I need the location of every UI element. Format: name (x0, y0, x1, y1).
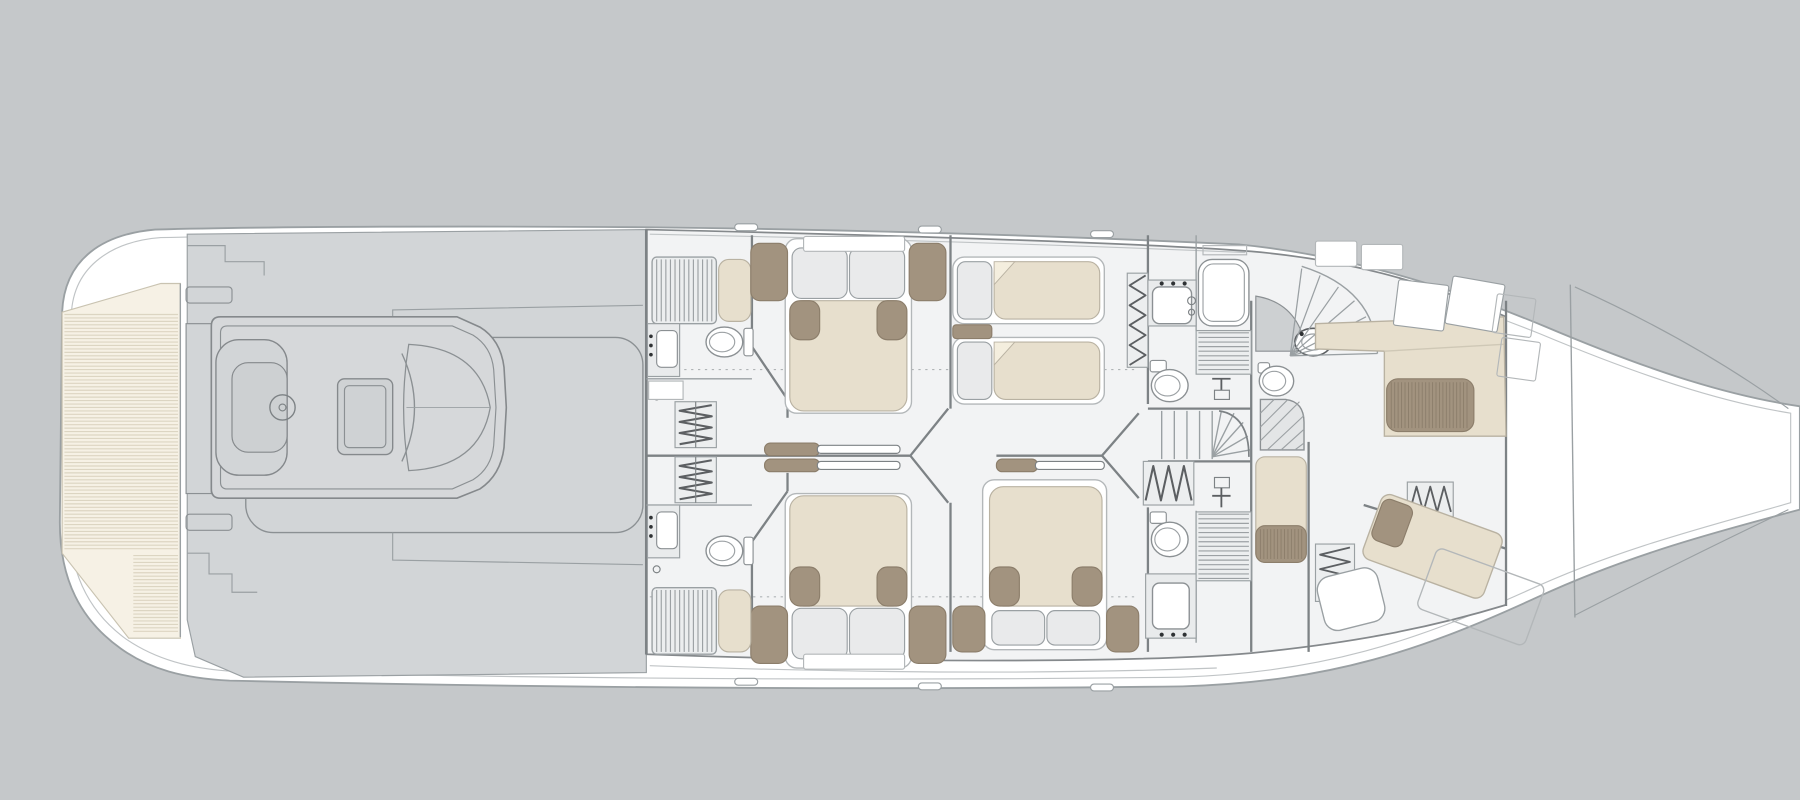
bed-fold-corner (790, 301, 820, 340)
toilet-bowl (706, 327, 743, 357)
sliding-door-pull (765, 443, 820, 456)
dinette-table (1393, 279, 1449, 331)
deck-cleat (1091, 231, 1114, 238)
twin-bed-spread (994, 262, 1100, 319)
galley-counter (1315, 241, 1356, 266)
bed-corner-cushion (751, 243, 788, 300)
cabin-dresser (804, 236, 905, 251)
bed-pillow (849, 608, 904, 659)
nightstand (953, 325, 992, 339)
toilet-bowl (1151, 522, 1188, 556)
bed-pillow (792, 608, 847, 659)
tender-console (338, 379, 393, 455)
bed-pillow (792, 248, 847, 299)
bed-fold-corner (790, 567, 820, 606)
sliding-door-leaf (1035, 461, 1104, 469)
basin-tap-dot (1300, 332, 1304, 336)
deck-cleat (1091, 684, 1114, 691)
deck-cleat (918, 226, 941, 233)
faucet-dot (1160, 633, 1164, 637)
floor-plan-svg (0, 0, 1800, 800)
deck-cleat (918, 683, 941, 690)
faucet-dot (649, 525, 653, 529)
faucet-dot (649, 353, 653, 357)
vanity-sink (657, 512, 678, 549)
bed-pillow (849, 248, 904, 299)
faucet-dot (1183, 281, 1187, 285)
vanity-sink (1153, 287, 1192, 324)
toilet-bowl (1151, 370, 1188, 402)
twin-bed-spread (994, 342, 1100, 399)
toilet-tank (1150, 512, 1166, 523)
bathtub (1198, 259, 1249, 326)
galley-counter (1361, 244, 1402, 269)
sliding-door-leaf (817, 445, 900, 453)
bath-shelf (649, 381, 683, 399)
bed-corner-cushion (909, 606, 946, 663)
sliding-door-leaf (817, 461, 900, 469)
deck-cleat (735, 224, 758, 231)
sliding-door-pull (996, 459, 1037, 472)
bed-pillow (992, 611, 1045, 645)
bed-fold-corner (877, 567, 907, 606)
faucet-dot (1183, 633, 1187, 637)
faucet-dot (1171, 281, 1175, 285)
bath-bench-cushion (719, 259, 751, 321)
faucet-dot (649, 516, 653, 520)
toilet-bowl (1259, 366, 1293, 396)
faucet-dot (1171, 633, 1175, 637)
bed-fold-corner (990, 567, 1020, 606)
vanity-sink (657, 331, 678, 368)
sliding-door-pull (765, 459, 820, 472)
toilet-tank (744, 537, 753, 565)
faucet-dot (649, 534, 653, 538)
faucet-dot (1160, 281, 1164, 285)
toilet-tank (744, 328, 753, 356)
tender-stern-platform (186, 324, 211, 494)
toilet-bowl (706, 536, 743, 566)
vanity-sink (1153, 583, 1190, 629)
bed-fold-corner (877, 301, 907, 340)
bed-corner-cushion (953, 606, 985, 652)
bed-pillow (957, 342, 991, 399)
bed-corner-cushion (751, 606, 788, 663)
faucet-dot (649, 344, 653, 348)
bed-corner-cushion (1107, 606, 1139, 652)
bed-corner-cushion (909, 243, 946, 300)
bed-fold-corner (1072, 567, 1102, 606)
cabin-dresser (804, 654, 905, 669)
faucet-dot (649, 334, 653, 338)
bed-pillow (1047, 611, 1100, 645)
shower-floor-grate (1198, 514, 1249, 578)
settee-seat-pad (1387, 379, 1474, 432)
bed-pillow (957, 262, 991, 319)
deck-cleat (735, 678, 758, 685)
yacht-deck-plan-page (0, 0, 1800, 800)
bath-bench-cushion (719, 590, 751, 652)
